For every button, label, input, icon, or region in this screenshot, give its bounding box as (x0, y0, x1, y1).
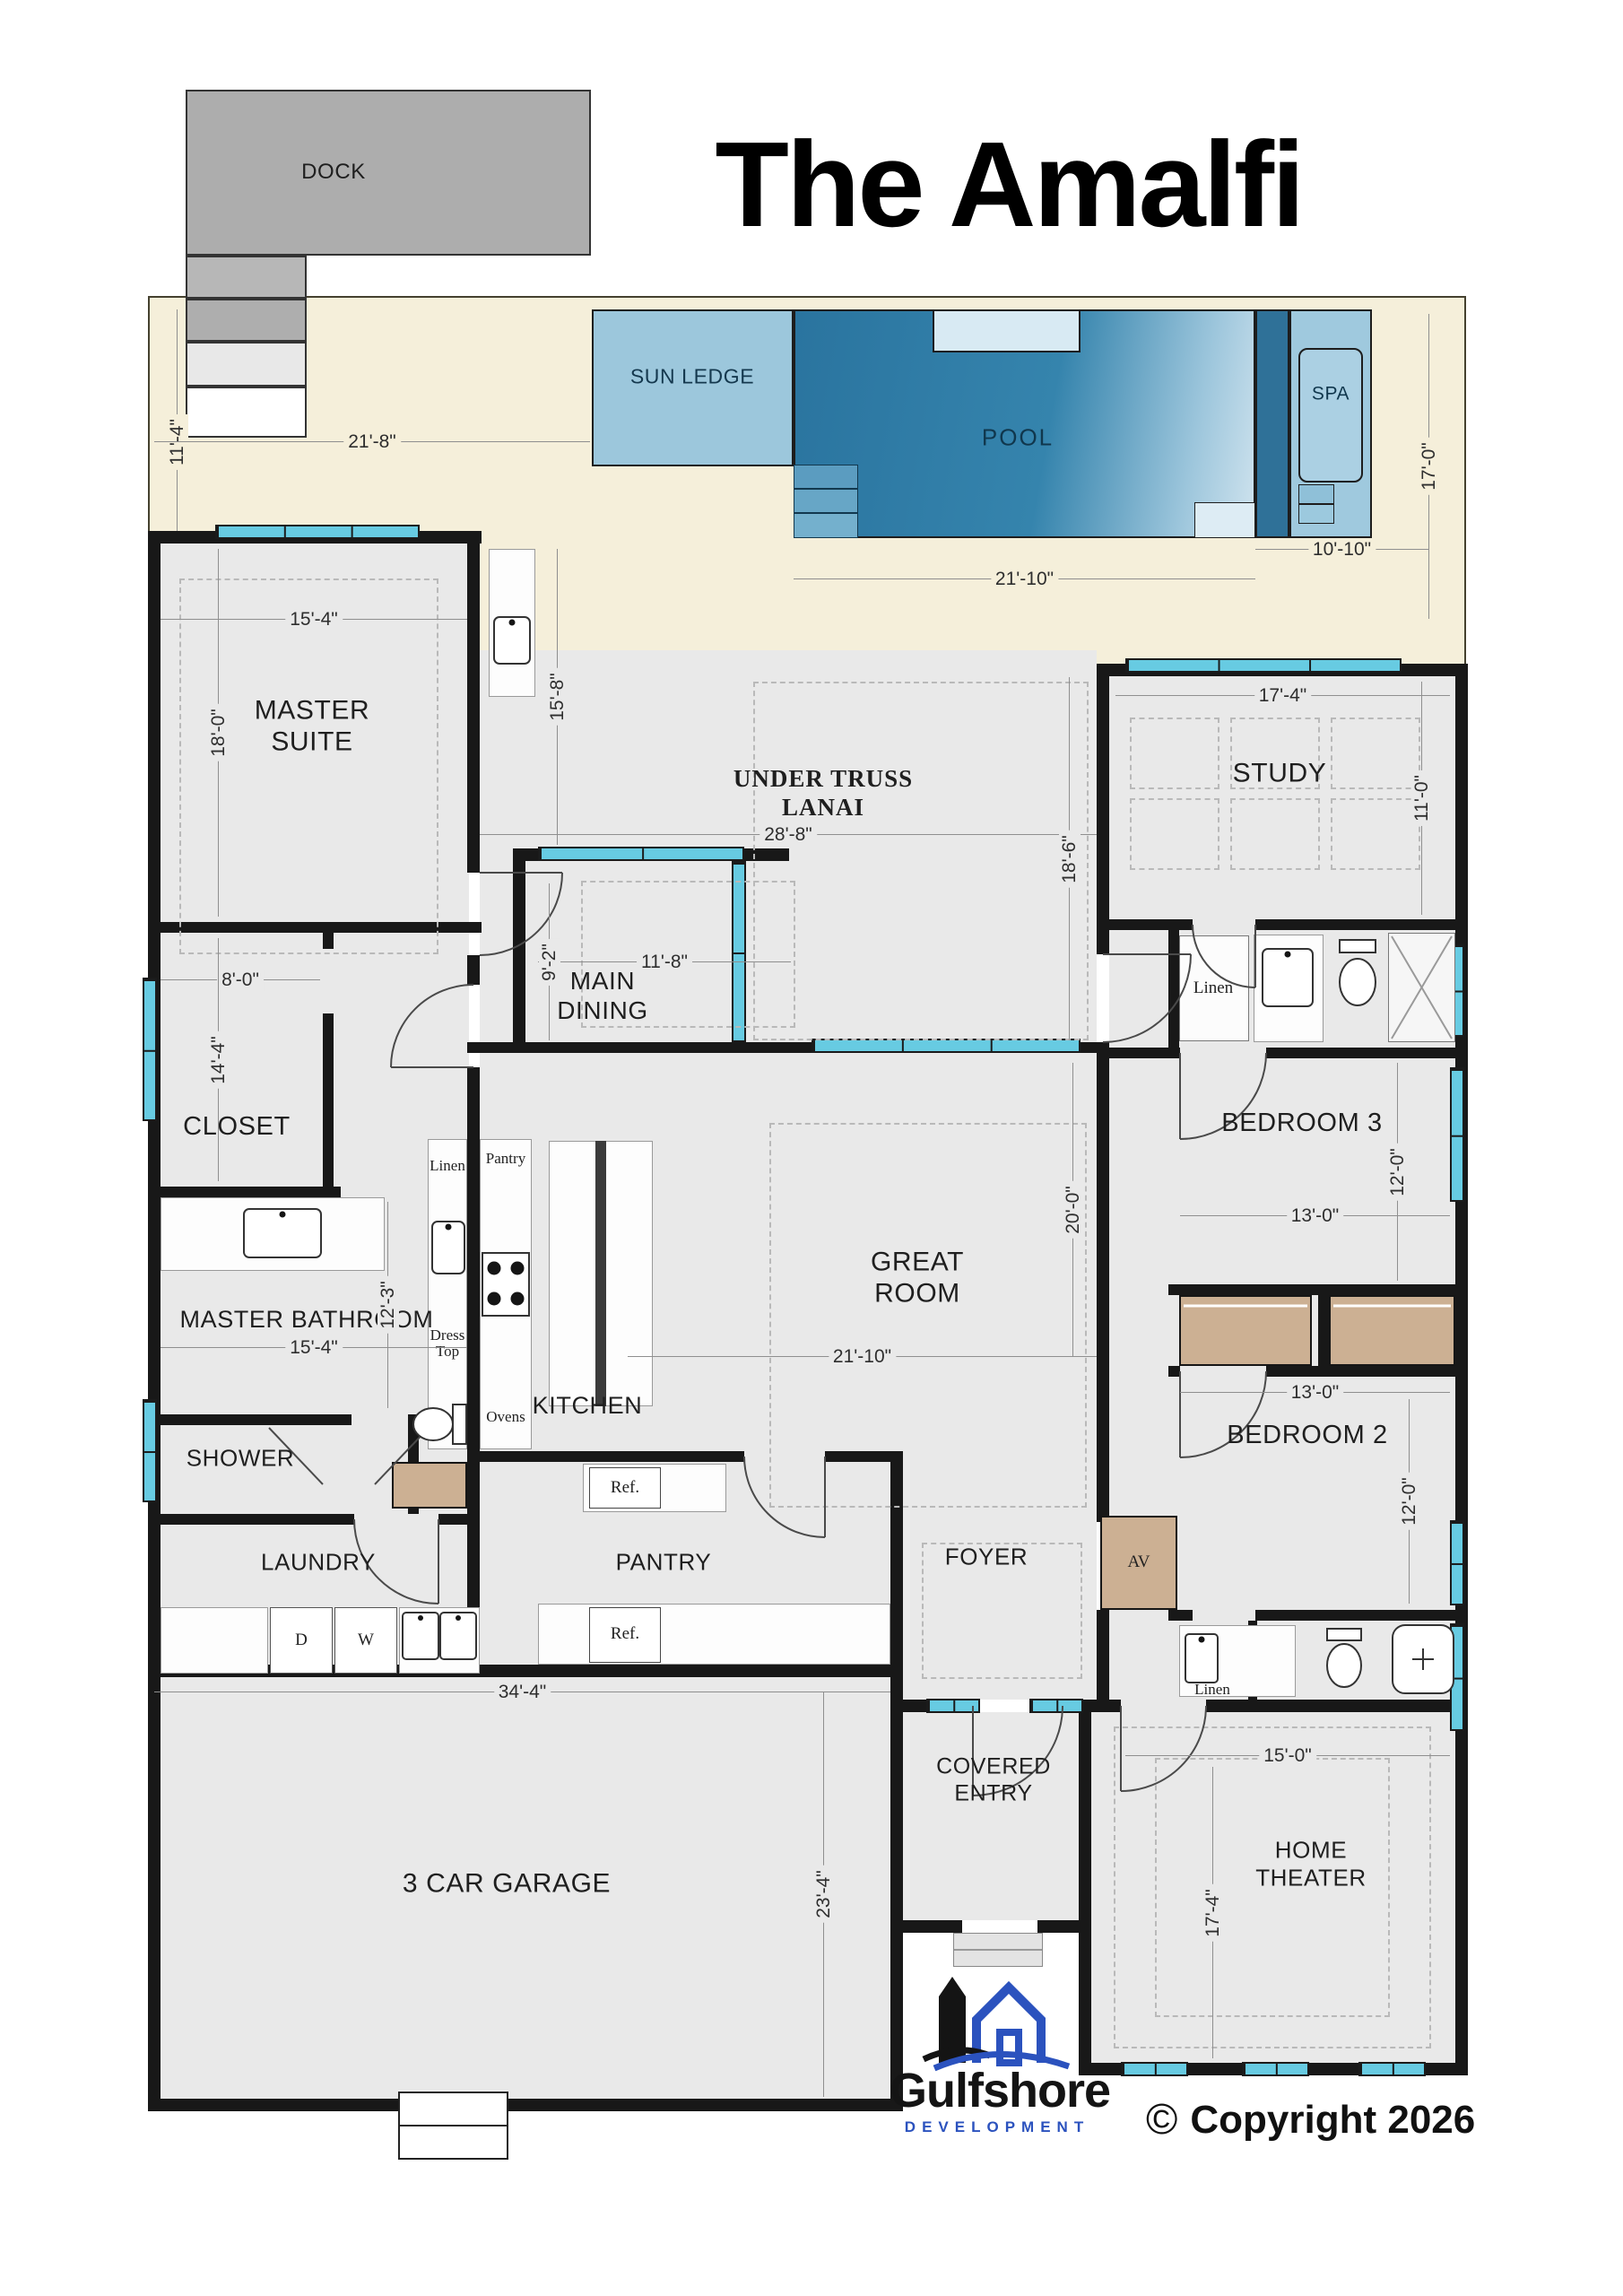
fixtures-overlay (0, 0, 1623, 2296)
dim-master-height: 18'-0" (218, 549, 219, 917)
dim-great-width: 21'-10" (628, 1356, 1097, 1357)
dim-bedroom2-height: 12'-0" (1409, 1399, 1410, 1604)
label-study: STUDY (1233, 757, 1327, 788)
faucet (456, 1615, 461, 1621)
faucet (418, 1615, 423, 1621)
toilet-tank-master (453, 1405, 466, 1444)
label-pantry: PANTRY (616, 1549, 712, 1577)
label-garage: 3 CAR GARAGE (403, 1867, 611, 1899)
label-main-dining: MAINDINING (557, 966, 648, 1025)
faucet (1199, 1637, 1205, 1643)
toilet-bowl-bath3 (1340, 959, 1376, 1005)
gulfshore-logo (924, 1977, 1069, 2068)
dim-closet-width: 8'-0" (161, 979, 320, 980)
label-pantry-cabinet: Pantry (486, 1151, 525, 1167)
dim-great-height: 20'-0" (1072, 1063, 1073, 1356)
label-home-theater: HOMETHEATER (1255, 1836, 1367, 1891)
label-washer: W (358, 1631, 374, 1649)
dim-theater-height: 17'-4" (1212, 1767, 1213, 2058)
dim-dining-width: 11'-8" (538, 961, 791, 962)
door-arc-pantry (744, 1457, 825, 1537)
label-fridge-bottom: Ref. (611, 1625, 639, 1643)
burner (511, 1292, 525, 1306)
dim-lanai-left-height: 15'-8" (557, 549, 558, 845)
label-bedroom3: BEDROOM 3 (1221, 1108, 1382, 1138)
dim-study-width: 17'-4" (1115, 695, 1450, 696)
copyright: © Copyright 2026 (1146, 2095, 1475, 2144)
label-foyer: FOYER (945, 1544, 1028, 1571)
label-shower: SHOWER (187, 1445, 295, 1473)
toilet-tank-bath3 (1340, 940, 1376, 952)
dim-bedroom3-width: 13'-0" (1180, 1215, 1450, 1216)
label-fridge-top: Ref. (611, 1479, 639, 1497)
dim-master-width: 15'-4" (161, 619, 467, 620)
floor-plan: The Amalfi DOCK SUN LEDGE POOL SPA 11'-4… (0, 0, 1623, 2296)
sink-bath3 (1263, 949, 1313, 1006)
dim-garage-width: 34'-4" (154, 1692, 890, 1692)
door-arc-theater (1121, 1706, 1206, 1791)
toilet-bowl-master (413, 1408, 453, 1440)
label-linen-kitchen: Linen (430, 1158, 465, 1174)
burner (488, 1292, 501, 1306)
label-closet: CLOSET (183, 1111, 291, 1142)
label-linen-bath2: Linen (1194, 1682, 1230, 1698)
label-great-room: GREATROOM (871, 1247, 964, 1310)
copyright-text: Copyright 2026 (1190, 2098, 1475, 2143)
brand-subtitle: DEVELOPMENT (890, 2118, 1105, 2136)
faucet (1285, 952, 1291, 958)
label-kitchen: KITCHEN (533, 1392, 643, 1421)
dim-mbath-width: 15'-4" (161, 1347, 467, 1348)
toilet-bowl-bath2 (1327, 1644, 1361, 1687)
dim-theater-width: 15'-0" (1125, 1755, 1450, 1756)
faucet (509, 620, 516, 626)
faucet (280, 1212, 286, 1218)
dim-lanai-height: 18'-6" (1069, 677, 1070, 1040)
label-dress-top: DressTop (430, 1327, 465, 1360)
dim-dining-height: 9'-2" (549, 883, 550, 1040)
label-bedroom2: BEDROOM 2 (1227, 1420, 1387, 1450)
label-lanai: UNDER TRUSSLANAI (733, 765, 913, 822)
logo-house-door (1000, 2032, 1019, 2063)
dim-lanai-width: 28'-8" (480, 834, 1097, 835)
brand-name: Gulfshore (890, 2063, 1105, 2118)
label-covered-entry: COVEREDENTRY (936, 1754, 1051, 1807)
door-arc-study (1103, 954, 1191, 1042)
label-linen-bath3: Linen (1193, 979, 1233, 997)
door-arc-hall (391, 985, 473, 1067)
label-ovens: Ovens (486, 1409, 525, 1425)
dim-mbath-height: 12'-3" (387, 1202, 388, 1408)
dim-bedroom3-height: 12'-0" (1397, 1063, 1398, 1281)
faucet (446, 1224, 452, 1231)
burner (511, 1262, 525, 1275)
label-master-suite: MASTERSUITE (255, 695, 370, 759)
toilet-tank-bath2 (1327, 1629, 1361, 1640)
dim-closet-height: 14'-4" (218, 938, 219, 1181)
dim-study-height: 11'-0" (1421, 682, 1422, 915)
copyright-icon: © (1146, 2095, 1177, 2144)
label-dryer: D (295, 1631, 308, 1649)
label-laundry: LAUNDRY (261, 1549, 376, 1577)
dim-bedroom2-width: 13'-0" (1180, 1392, 1450, 1393)
dim-garage-height: 23'-4" (823, 1692, 824, 2097)
burner (488, 1262, 501, 1275)
